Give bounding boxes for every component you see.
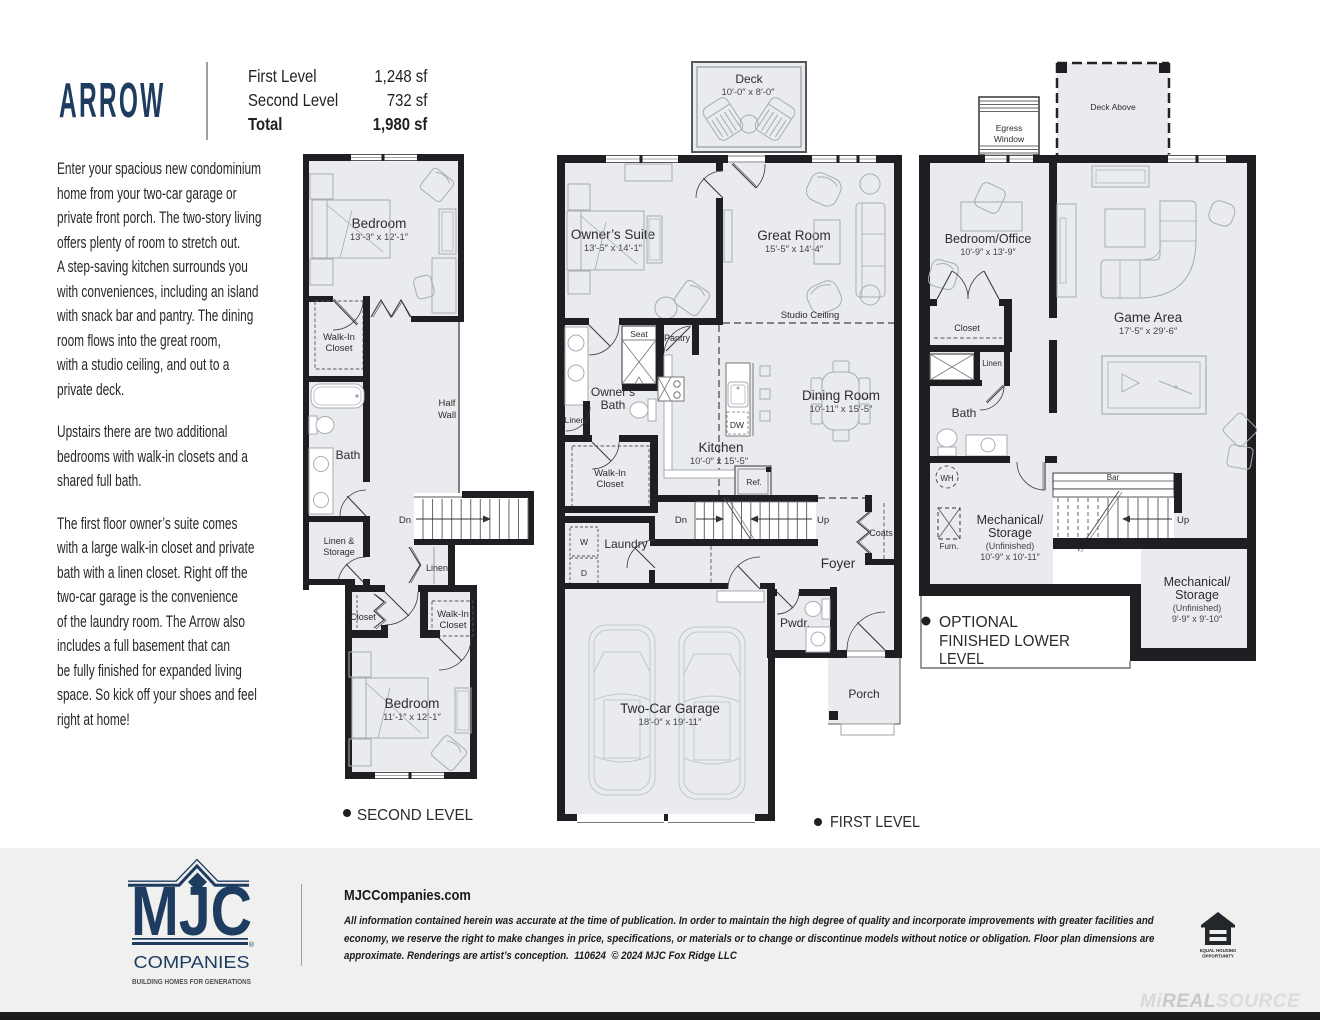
svg-text:Dining Room: Dining Room [802,388,880,403]
svg-text:Coats: Coats [869,528,893,538]
svg-text:Two-Car Garage: Two-Car Garage [620,701,720,716]
svg-text:EQUAL HOUSING: EQUAL HOUSING [1200,948,1236,953]
svg-text:WH: WH [940,474,954,483]
svg-text:Up: Up [1177,515,1189,526]
svg-text:10′-9″ x 13′-9″: 10′-9″ x 13′-9″ [960,247,1016,257]
svg-text:Bath: Bath [601,398,626,412]
svg-text:17′-5″ x 29′-6″: 17′-5″ x 29′-6″ [1119,326,1178,337]
svg-text:Seat: Seat [630,329,648,339]
svg-text:Deck: Deck [735,72,763,86]
svg-text:Window: Window [994,134,1025,144]
svg-text:Closet: Closet [597,479,624,490]
svg-text:Half: Half [439,398,456,409]
svg-text:Storage: Storage [1175,588,1219,602]
svg-text:Great Room: Great Room [757,228,831,243]
svg-text:15′-5″ x 14′-4″: 15′-5″ x 14′-4″ [765,244,824,255]
svg-text:Walk-In: Walk-In [437,609,469,620]
svg-text:9′-9″ x 9′-10″: 9′-9″ x 9′-10″ [1172,614,1223,624]
svg-text:Linen: Linen [426,563,448,573]
svg-text:DW: DW [730,420,744,430]
svg-text:Closet: Closet [350,612,376,622]
svg-text:Owner’s Suite: Owner’s Suite [571,227,655,242]
svg-text:Bedroom: Bedroom [385,696,440,711]
svg-text:Storage: Storage [988,526,1032,540]
svg-text:Closet: Closet [954,323,980,333]
svg-text:W: W [580,537,588,547]
svg-text:10′-9″ x 10′-11″: 10′-9″ x 10′-11″ [980,552,1040,562]
svg-text:10′-11″ x 15′-5″: 10′-11″ x 15′-5″ [810,404,874,415]
svg-text:18′-0″ x 19′-11″: 18′-0″ x 19′-11″ [639,717,703,728]
svg-text:(Unfinished): (Unfinished) [1173,603,1222,613]
svg-text:D: D [581,568,587,578]
svg-text:Studio Ceiling: Studio Ceiling [781,310,840,321]
svg-text:Linen &: Linen & [324,536,355,546]
svg-text:10′-0″ x 8′-0″: 10′-0″ x 8′-0″ [721,87,775,98]
svg-text:(Unfinished): (Unfinished) [986,541,1035,551]
svg-text:13′-3″ x 12′-1″: 13′-3″ x 12′-1″ [350,232,409,243]
svg-text:FIRST LEVEL: FIRST LEVEL [830,814,920,831]
svg-text:Walk-In: Walk-In [323,332,355,343]
svg-text:Bath: Bath [952,406,977,420]
svg-text:®: ® [249,941,255,949]
svg-text:Closet: Closet [440,620,467,631]
svg-text:Linen: Linen [982,359,1002,368]
svg-text:Storage: Storage [323,547,355,557]
svg-text:LEVEL: LEVEL [939,651,984,668]
svg-text:Up: Up [817,515,829,526]
svg-text:Furn.: Furn. [940,542,959,551]
svg-text:Ref.: Ref. [746,477,762,487]
svg-text:Kitchen: Kitchen [698,440,743,455]
svg-text:SECOND LEVEL: SECOND LEVEL [357,807,473,824]
svg-text:Bar: Bar [1107,473,1120,482]
svg-text:Deck Above: Deck Above [1090,102,1136,112]
svg-text:Mechanical/: Mechanical/ [977,513,1044,527]
svg-text:Pantry: Pantry [664,333,691,343]
svg-text:Foyer: Foyer [821,556,856,571]
svg-text:BUILDING HOMES FOR GENERATIONS: BUILDING HOMES FOR GENERATIONS [132,977,251,986]
svg-text:Linen: Linen [565,415,586,425]
svg-text:13′-5″ x 14′-1″: 13′-5″ x 14′-1″ [584,243,643,254]
svg-text:FINISHED LOWER: FINISHED LOWER [939,633,1070,650]
svg-text:Closet: Closet [326,343,353,354]
svg-text:Dn: Dn [399,515,411,526]
svg-text:Bedroom/Office: Bedroom/Office [945,232,1032,246]
svg-text:Egress: Egress [996,123,1022,133]
svg-text:Owner’s: Owner’s [591,385,635,399]
svg-text:Porch: Porch [848,687,879,701]
svg-text:Walk-In: Walk-In [594,468,626,479]
svg-text:Wall: Wall [438,410,456,421]
svg-text:Dn: Dn [675,515,687,526]
svg-text:COMPANIES: COMPANIES [134,952,250,972]
svg-text:OPPORTUNITY: OPPORTUNITY [1202,954,1234,959]
svg-text:OPTIONAL: OPTIONAL [939,614,1018,631]
svg-text:11′-1″ x 12′-1″: 11′-1″ x 12′-1″ [383,712,441,723]
svg-text:10′-0″ x 15′-5″: 10′-0″ x 15′-5″ [690,456,749,467]
svg-text:Game Area: Game Area [1114,310,1183,325]
svg-text:Mechanical/: Mechanical/ [1164,575,1231,589]
svg-text:Bath: Bath [336,448,361,462]
svg-text:Bedroom: Bedroom [352,216,407,231]
